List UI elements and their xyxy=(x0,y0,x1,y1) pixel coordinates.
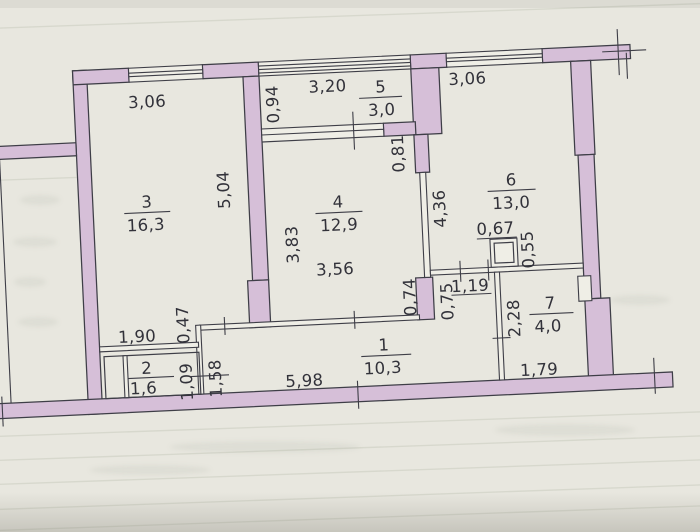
top-wall-seg3 xyxy=(410,53,447,69)
dim-room7-width: 1,79 xyxy=(520,359,559,380)
dim-room4-width: 3,56 xyxy=(316,259,355,280)
dim-room3-depth: 5,04 xyxy=(213,170,234,209)
room-4-area: 12,9 xyxy=(320,215,359,236)
dim-room7-depth: 2,28 xyxy=(504,299,525,338)
room-4-number: 4 xyxy=(332,192,344,211)
center-pier-lower xyxy=(414,134,430,173)
dim-duct-width: 0,67 xyxy=(476,218,515,239)
center-pier-foot xyxy=(383,122,416,136)
dim-opening-room6: 1,19 xyxy=(451,275,490,296)
top-wall-seg1 xyxy=(72,68,129,85)
dim-room6-width: 3,06 xyxy=(448,68,487,89)
dim-hall-width: 5,98 xyxy=(285,370,324,391)
room-7-area: 4,0 xyxy=(534,316,562,336)
dim-balcony-depth: 0,94 xyxy=(262,85,283,124)
room-6-area: 13,0 xyxy=(492,192,531,213)
dim-room2-depth: 1,09 xyxy=(176,362,197,401)
dim-wall-inset: 0,81 xyxy=(388,134,409,173)
room-1-number: 1 xyxy=(378,335,390,354)
floor-plan-photo: 3 16,3 4 12,9 5 3,0 6 13,0 7 4,0 1 10,3 … xyxy=(0,0,700,532)
dim-room3-width: 3,06 xyxy=(128,91,167,112)
right-wall-upper xyxy=(571,60,595,155)
dim-nook-width: 1,90 xyxy=(118,326,157,347)
dim-hall-left-depth: 1,58 xyxy=(205,359,226,398)
room-3-number: 3 xyxy=(141,192,153,211)
dim-door-hall: 0,75 xyxy=(437,282,458,321)
dim-room6-depth: 4,36 xyxy=(430,189,451,228)
dim-step-depth: 0,47 xyxy=(173,306,194,345)
top-shadow-band xyxy=(0,0,700,8)
right-wall-lower xyxy=(585,298,614,377)
room-5-area: 3,0 xyxy=(368,100,396,120)
room3-window xyxy=(128,65,203,82)
room-5-number: 5 xyxy=(375,77,387,96)
floor-plan-svg: 3 16,3 4 12,9 5 3,0 6 13,0 7 4,0 1 10,3 … xyxy=(0,0,700,532)
room-7-number: 7 xyxy=(544,293,556,312)
room-1-area: 10,3 xyxy=(363,358,402,379)
dim-balcony-width: 3,20 xyxy=(308,76,347,97)
dim-door-room4: 0,74 xyxy=(400,278,421,317)
duct-shaft xyxy=(490,238,518,267)
bottom-shadow-band xyxy=(0,492,700,532)
room3-right-wall-foot xyxy=(248,280,271,328)
room-2-area: 1,6 xyxy=(130,378,158,398)
right-wall-niche xyxy=(578,276,592,302)
room-2-number: 2 xyxy=(141,358,153,377)
dim-duct-depth: 0,55 xyxy=(518,230,539,269)
room-3-area: 16,3 xyxy=(126,215,165,236)
dim-room4-depth: 3,83 xyxy=(282,225,303,264)
room-6-number: 6 xyxy=(505,170,517,189)
